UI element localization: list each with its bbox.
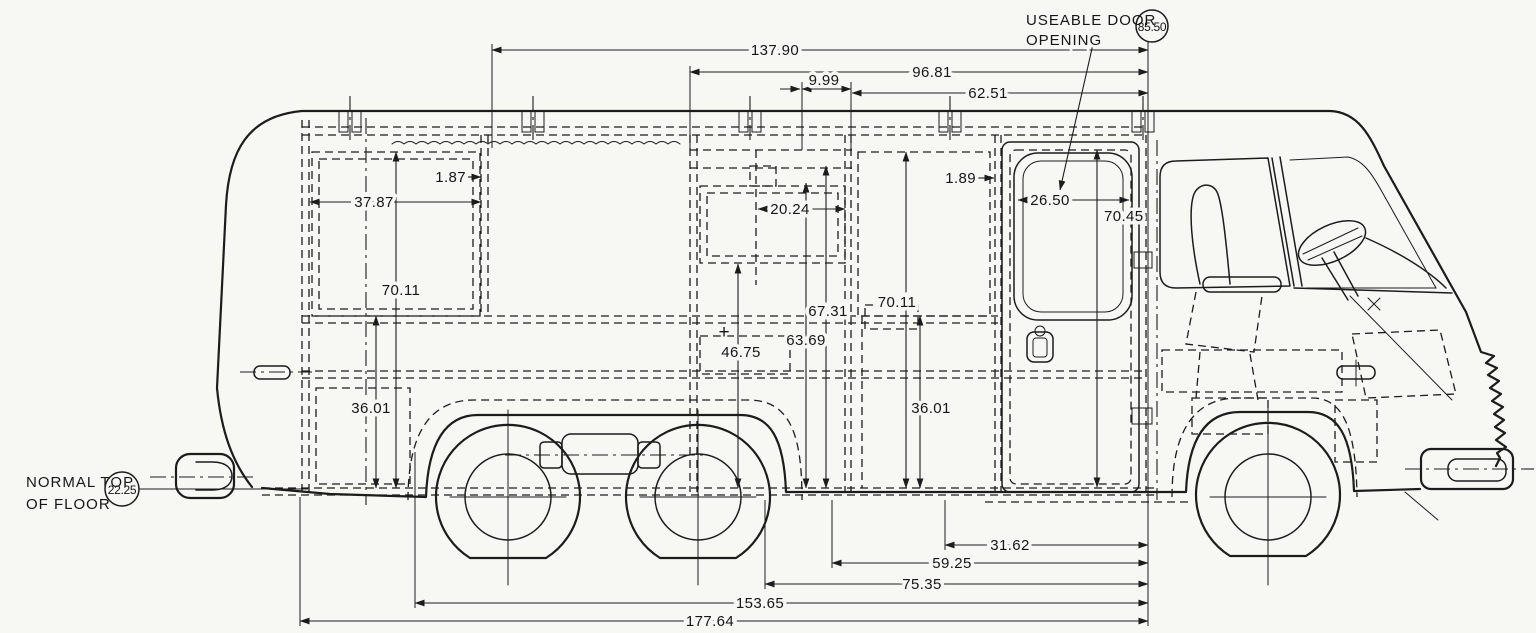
plus-marker: + <box>718 322 729 343</box>
door-handle <box>1027 326 1053 362</box>
dim-wall-1-89: 1.89 <box>945 170 976 187</box>
roof-vent <box>939 96 961 140</box>
dim-width-20-24: 20.24 <box>770 201 810 218</box>
side-marker-light <box>1337 360 1375 386</box>
driver-seat <box>1191 185 1230 284</box>
door-window <box>1014 153 1132 320</box>
dim-top-62: 62.51 <box>968 85 1008 102</box>
steering-wheel <box>1292 211 1452 400</box>
dim-height-46-75: 46.75 <box>721 344 761 361</box>
dim-bottom-75-35: 75.35 <box>902 576 942 593</box>
rear-bumper <box>150 454 254 498</box>
door-opening-value: 85.50 <box>1138 20 1167 34</box>
dim-height-70-11-front: 70.11 <box>878 294 916 311</box>
dim-width-37-87: 37.87 <box>354 194 394 211</box>
door-hinge <box>1134 252 1152 268</box>
roof-vents <box>339 96 1154 140</box>
cockpit <box>1160 157 1456 462</box>
dim-bottom-177-64: 177.64 <box>686 613 734 630</box>
dim-top-96: 96.81 <box>912 64 952 81</box>
rear-wheel-1 <box>436 410 580 585</box>
dim-height-67-31: 67.31 <box>808 303 848 320</box>
dim-height-36-01-front: 36.01 <box>911 400 951 417</box>
motorhome-dimension-drawing: 137.90 96.81 9.99 62.51 1.87 37.87 70.11… <box>0 0 1536 633</box>
roof-vent <box>739 96 761 140</box>
dim-top-9: 9.99 <box>809 72 840 89</box>
roof-vent <box>522 96 544 140</box>
driver-side-window <box>1160 158 1290 288</box>
tandem-bogie <box>505 434 705 474</box>
floor-height-value: 22.25 <box>108 483 137 497</box>
floor-label-line2: OF FLOOR <box>26 496 111 513</box>
door-opening-leader <box>1060 44 1093 190</box>
dim-height-70-11-rear: 70.11 <box>382 282 420 299</box>
dim-wall-1-87: 1.87 <box>435 169 466 186</box>
roof-vent <box>1132 96 1154 140</box>
dim-door-70-45: 70.45 <box>1104 208 1144 225</box>
door-hinge <box>1132 408 1152 424</box>
dim-height-36-01-rear: 36.01 <box>351 400 391 417</box>
dim-bottom-31-62: 31.62 <box>990 537 1030 554</box>
dim-overall-top: 137.90 <box>751 42 799 59</box>
dim-height-63-69: 63.69 <box>786 332 826 349</box>
dimension-labels: 137.90 96.81 9.99 62.51 1.87 37.87 70.11… <box>351 42 1143 630</box>
useable-door-label-line2: OPENING <box>1026 32 1102 49</box>
rear-wheel-2 <box>626 410 770 585</box>
blueprint-canvas: 137.90 96.81 9.99 62.51 1.87 37.87 70.11… <box>0 0 1536 633</box>
entry-door <box>1002 142 1152 492</box>
rear-marker-light <box>240 366 312 379</box>
dim-bottom-59-25: 59.25 <box>932 555 972 572</box>
dim-bottom-153-65: 153.65 <box>736 595 784 612</box>
dim-door-window-26-50: 26.50 <box>1030 192 1070 209</box>
front-bumper <box>1405 449 1534 520</box>
roof-vent <box>339 96 361 140</box>
